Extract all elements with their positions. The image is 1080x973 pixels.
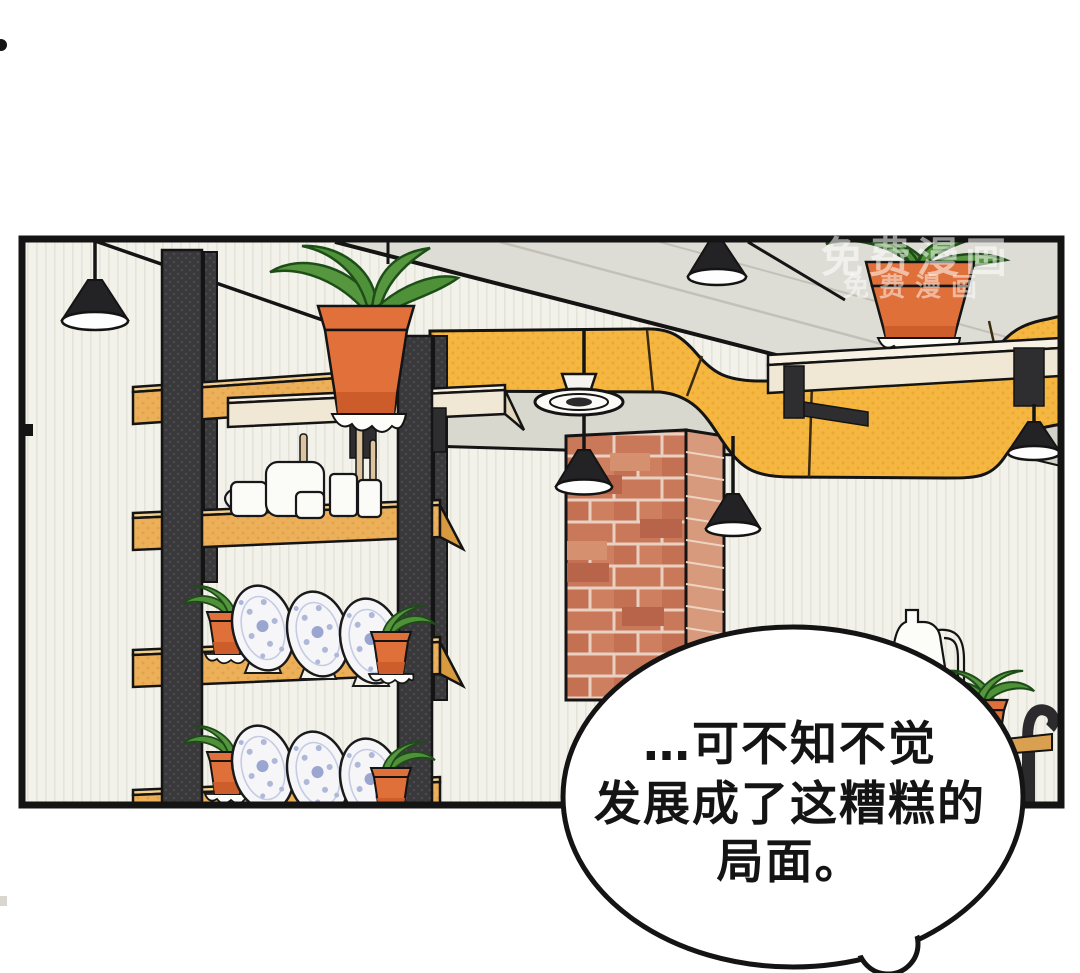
watermark-line-2: 免费漫画 [843, 272, 987, 303]
speech-bubble-line-1: …可不知不觉 [643, 717, 937, 772]
page-mark [0, 896, 7, 906]
comic-page: …可不知不觉 发展成了这糟糕的 局面。 免费漫画 免费漫画 [0, 0, 1080, 973]
watermark: 免费漫画 免费漫画 [821, 233, 1013, 303]
comic-panel-art: …可不知不觉 发展成了这糟糕的 局面。 免费漫画 免费漫画 [0, 0, 1080, 973]
shelf-post [398, 336, 432, 810]
speech-bubble-line-2: 发展成了这糟糕的 [594, 777, 986, 832]
speech-bubble-line-3: 局面。 [717, 835, 864, 890]
speech-bubble: …可不知不觉 发展成了这糟糕的 局面。 [563, 627, 1023, 973]
page-mark [0, 39, 7, 51]
